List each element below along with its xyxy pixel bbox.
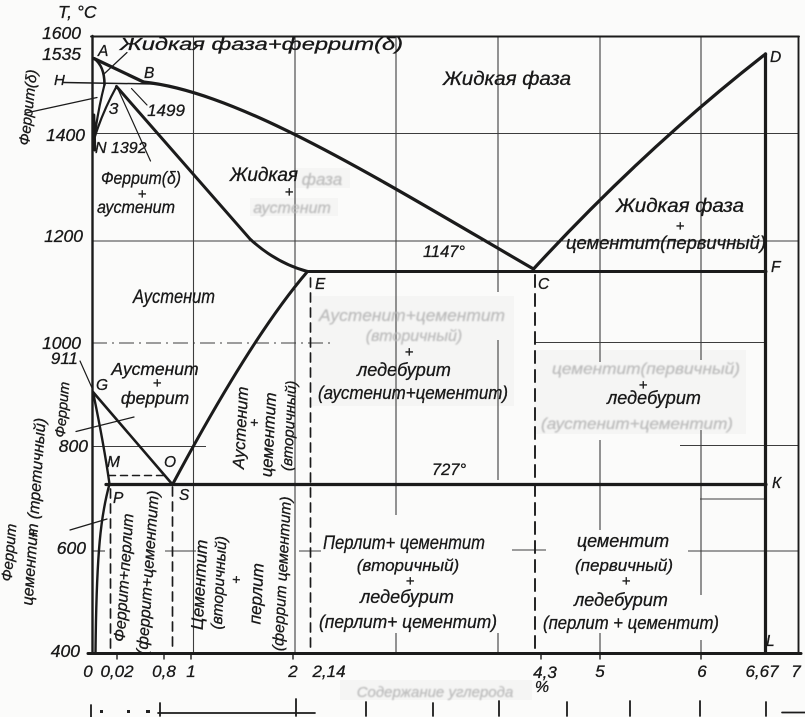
svg-text:Перлит+ цементит: Перлит+ цементит — [323, 533, 485, 554]
svg-text:М: М — [107, 454, 120, 471]
svg-text:Содержание углерода: Содержание углерода — [357, 684, 514, 701]
svg-text:+: + — [622, 573, 631, 590]
svg-text:Жидкая фаза+феррит(δ): Жидкая фаза+феррит(δ) — [119, 34, 403, 54]
svg-text:С: С — [538, 276, 550, 293]
svg-text:ледебурит: ледебурит — [359, 587, 454, 607]
svg-text:(вторичный): (вторичный) — [366, 328, 462, 345]
svg-text:1400: 1400 — [46, 125, 85, 145]
svg-text:А: А — [97, 43, 108, 60]
svg-text:F: F — [771, 259, 782, 276]
svg-text:В: В — [144, 65, 154, 82]
svg-text:Р: Р — [113, 490, 124, 507]
svg-text:Е: Е — [315, 276, 326, 293]
svg-text:7: 7 — [791, 662, 801, 681]
svg-text:1147°: 1147° — [423, 243, 465, 261]
svg-text:400: 400 — [51, 641, 80, 661]
svg-text:ледебурит: ледебурит — [573, 590, 668, 610]
svg-text:Аустенит+цементит: Аустенит+цементит — [318, 306, 505, 325]
svg-text:+: + — [228, 575, 244, 584]
svg-text:Феррит(δ): Феррит(δ) — [101, 168, 181, 188]
svg-text:N 1392: N 1392 — [95, 140, 147, 157]
svg-text:600: 600 — [57, 538, 86, 558]
svg-text:1535: 1535 — [42, 44, 81, 64]
svg-text:цементит: цементит — [577, 531, 669, 551]
svg-text:(перлит + цементит): (перлит + цементит) — [543, 613, 719, 633]
svg-text:перлит: перлит — [245, 563, 267, 625]
svg-text:Жидкая фаза: Жидкая фаза — [442, 69, 571, 90]
svg-text:G: G — [96, 377, 108, 394]
svg-text:З: З — [109, 101, 119, 118]
svg-text:S: S — [179, 487, 190, 504]
svg-text:К: К — [772, 475, 782, 492]
svg-text:727°: 727° — [432, 461, 467, 479]
svg-text:0,8: 0,8 — [152, 662, 176, 681]
svg-text:911: 911 — [51, 349, 78, 368]
svg-text:+: + — [285, 184, 294, 201]
svg-text:6: 6 — [697, 662, 707, 681]
svg-text:Жидкая фаза: Жидкая фаза — [615, 196, 744, 217]
svg-text:ледебурит: ледебурит — [356, 360, 451, 380]
svg-text:1200: 1200 — [44, 226, 83, 246]
svg-text:(аустенит+цементит): (аустенит+цементит) — [318, 383, 508, 403]
svg-text:%: % — [535, 679, 549, 696]
svg-text:1: 1 — [186, 662, 195, 681]
svg-text:Жидкая: Жидкая — [229, 165, 298, 186]
svg-text:Т, °С: Т, °С — [58, 2, 97, 22]
svg-text:0: 0 — [83, 662, 93, 681]
svg-text:0,02: 0,02 — [100, 662, 134, 681]
svg-text:D: D — [770, 49, 781, 66]
svg-text:О: О — [164, 454, 176, 471]
svg-text:Н: Н — [54, 72, 65, 89]
svg-text:феррит: феррит — [121, 388, 189, 408]
svg-text:(аустенит+цементит): (аустенит+цементит) — [541, 416, 733, 433]
svg-text:аустенит: аустенит — [97, 197, 175, 217]
svg-text:L: L — [766, 633, 775, 650]
svg-text:аустенит: аустенит — [253, 200, 331, 217]
svg-text:Аустенит: Аустенит — [132, 287, 215, 308]
svg-text:2,14: 2,14 — [311, 662, 345, 681]
svg-text:цементит(первичный): цементит(первичный) — [566, 233, 766, 253]
svg-text:1600: 1600 — [42, 23, 81, 43]
svg-text:ледебурит: ледебурит — [606, 388, 701, 408]
svg-text:цементит(первичный): цементит(первичный) — [552, 361, 740, 378]
svg-text:(перлит+ цементит): (перлит+ цементит) — [319, 612, 497, 632]
svg-text:2: 2 — [287, 662, 298, 681]
svg-text:800: 800 — [59, 436, 88, 456]
svg-text:6,67: 6,67 — [745, 662, 779, 681]
svg-text:+: + — [405, 344, 414, 361]
svg-text:5: 5 — [595, 662, 605, 681]
svg-text:фаза: фаза — [302, 170, 342, 189]
svg-text:1499: 1499 — [147, 101, 185, 120]
